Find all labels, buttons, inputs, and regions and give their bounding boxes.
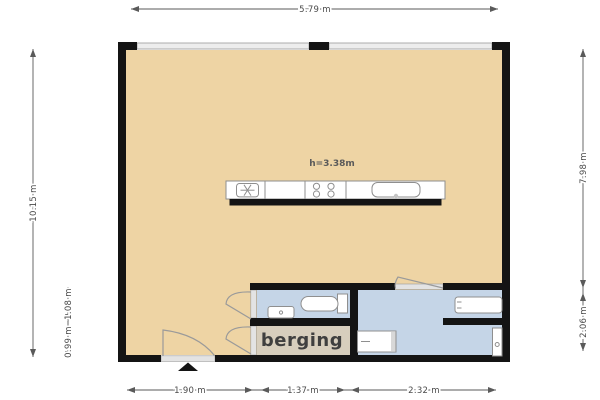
washing-machine-icon [358,331,397,352]
floor-plan: h=3.38m berging 5.79 m 10.15 m 1.08 m [0,0,600,400]
dim-left-inner-lower: 0.99 m [64,326,74,358]
toilet-door-opening [251,290,257,318]
entrance-door-opening [161,356,215,362]
top-window-right [329,43,492,49]
ceiling-height-label: h=3.38m [309,159,355,169]
dim-bottom-middle: 1.37 m [287,386,319,396]
dim-right-lower: 2.06 m [579,306,589,338]
storage-door-opening [251,326,257,355]
shower-icon [493,328,503,356]
entrance-arrow-icon [178,363,198,372]
hand-basin-icon [268,307,294,319]
dim-left-inner-upper: 1.08 m [64,288,74,320]
floorplan-canvas: h=3.38m berging 5.79 m 10.15 m 1.08 m [0,0,600,400]
dim-bottom-right: 2.32 m [408,386,440,396]
storage-room-label: berging [261,330,343,351]
dim-right-upper: 7.98 m [579,152,589,184]
counter-base [230,199,442,206]
dim-left-height: 10.15 m [29,184,39,221]
top-window-left [137,43,309,49]
dim-bottom-left: 1.90 m [174,386,206,396]
kitchen-counter [226,181,445,206]
washbasin-icon [455,297,502,313]
dim-top-width: 5.79 m [299,5,331,15]
toilet-icon [301,294,348,313]
